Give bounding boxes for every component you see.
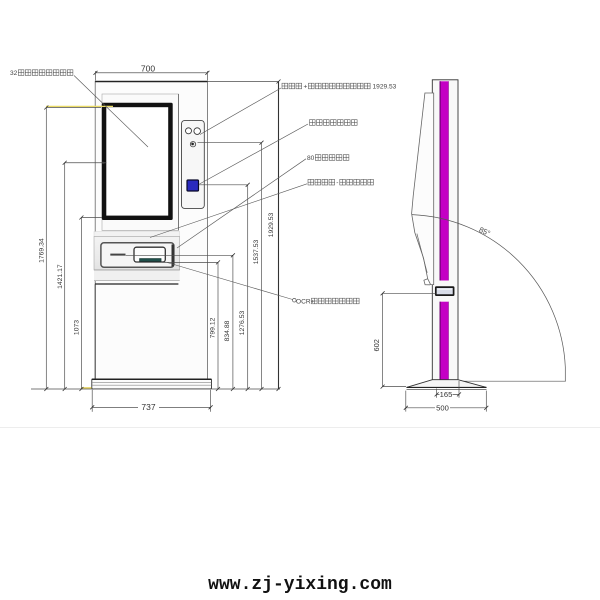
svg-text:602: 602	[372, 339, 381, 351]
svg-text:500: 500	[436, 404, 449, 413]
svg-text:1769.34: 1769.34	[39, 238, 46, 263]
svg-text:1421.17: 1421.17	[57, 264, 64, 289]
svg-text:1929.53: 1929.53	[373, 83, 397, 90]
svg-text:1073: 1073	[73, 320, 80, 335]
svg-text:700: 700	[141, 63, 155, 73]
svg-text:85°: 85°	[478, 225, 492, 238]
svg-text:799.12: 799.12	[209, 317, 216, 338]
svg-text:OCR+: OCR+	[296, 298, 315, 305]
svg-text:1929.53: 1929.53	[268, 213, 275, 238]
svg-text:834.88: 834.88	[224, 320, 231, 341]
svg-text:1276.53: 1276.53	[239, 311, 246, 336]
svg-text:80: 80	[307, 155, 315, 162]
svg-text:-: -	[336, 180, 338, 187]
svg-text:737: 737	[141, 402, 155, 412]
svg-text:+: +	[304, 83, 308, 90]
svg-text:32: 32	[10, 70, 18, 77]
svg-text:165: 165	[440, 390, 453, 399]
svg-text:1537.53: 1537.53	[253, 240, 260, 265]
